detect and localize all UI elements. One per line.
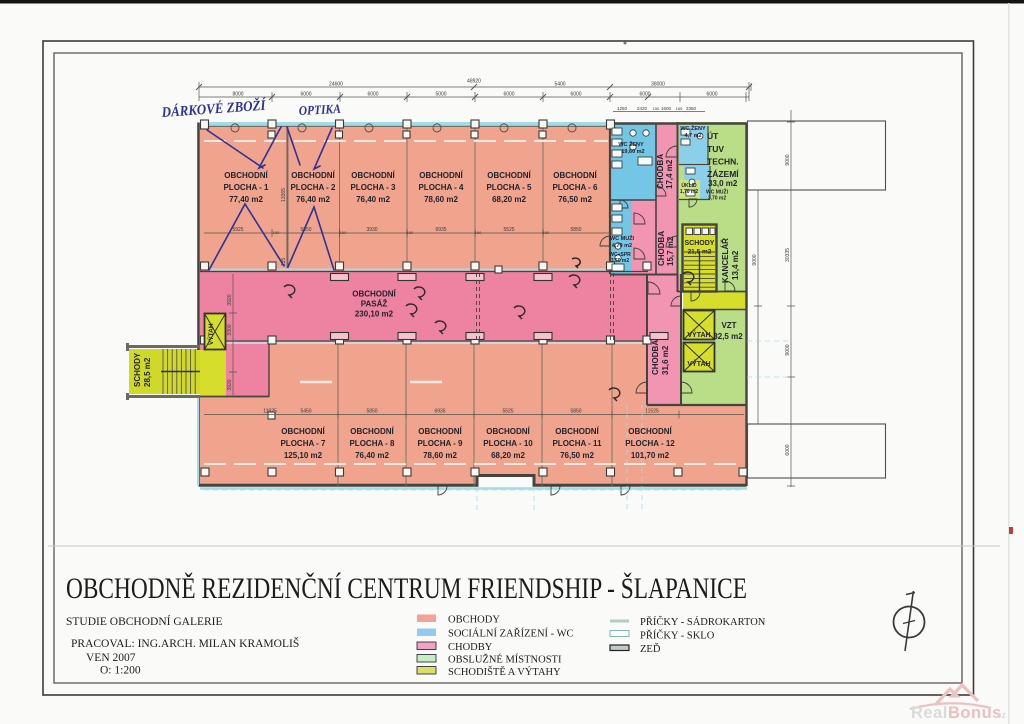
svg-text:150: 150	[653, 106, 660, 111]
svg-text:OBCHODNÍ: OBCHODNÍ	[352, 290, 396, 299]
svg-text:6935: 6935	[435, 227, 446, 233]
svg-text:SCHODY: SCHODY	[685, 240, 715, 247]
svg-text:PLOCHA - 3: PLOCHA - 3	[350, 183, 396, 192]
svg-text:OBCHODNÍ: OBCHODNÍ	[419, 171, 463, 180]
svg-text:OBCHODNÍ: OBCHODNÍ	[291, 171, 335, 180]
svg-text:OBCHODNÍ: OBCHODNÍ	[628, 427, 672, 436]
svg-text:PASÁŽ: PASÁŽ	[361, 300, 388, 309]
svg-text:O: 1:200: O: 1:200	[100, 665, 141, 677]
svg-text:PLOCHA - 8: PLOCHA - 8	[349, 439, 395, 448]
svg-text:6000: 6000	[503, 92, 514, 98]
svg-text:38000: 38000	[651, 82, 665, 88]
svg-text:PLOCHA - 9: PLOCHA - 9	[417, 439, 463, 448]
svg-text:6000: 6000	[570, 92, 581, 98]
svg-text:6000: 6000	[785, 444, 791, 455]
svg-text:76,50 m2: 76,50 m2	[560, 451, 594, 460]
svg-text:.cz: .cz	[994, 710, 1007, 720]
svg-text:3,70 m2: 3,70 m2	[708, 196, 727, 202]
svg-text:2350: 2350	[686, 106, 697, 111]
svg-text:6000: 6000	[300, 92, 311, 98]
svg-text:OBCHODNÍ: OBCHODNÍ	[224, 171, 268, 180]
svg-text:Real: Real	[911, 704, 948, 722]
svg-text:VEN 2007: VEN 2007	[86, 652, 136, 664]
svg-text:1,70 m2: 1,70 m2	[680, 189, 699, 195]
svg-text:OBCHODNÍ: OBCHODNÍ	[553, 171, 597, 180]
svg-text:77,40 m2: 77,40 m2	[229, 195, 263, 204]
svg-text:OBCHODNÍ: OBCHODNÍ	[486, 427, 530, 436]
svg-text:5000: 5000	[435, 92, 446, 98]
svg-text:VÝTAH: VÝTAH	[687, 330, 710, 339]
svg-text:13,4 m2: 13,4 m2	[731, 250, 740, 280]
svg-text:28,5 m2: 28,5 m2	[143, 357, 152, 387]
svg-text:ZEĎ: ZEĎ	[640, 643, 661, 655]
svg-text:9000: 9000	[785, 154, 791, 165]
svg-text:150: 150	[340, 230, 347, 235]
svg-text:3920: 3920	[227, 294, 233, 305]
svg-text:PLOCHA - 2: PLOCHA - 2	[290, 183, 336, 192]
svg-text:101,70 m2: 101,70 m2	[631, 451, 670, 460]
svg-text:5850: 5850	[570, 227, 581, 233]
svg-text:19,60 m2: 19,60 m2	[621, 149, 644, 155]
svg-text:15,7 m2: 15,7 m2	[666, 236, 675, 266]
svg-text:3930: 3930	[366, 227, 377, 233]
svg-text:OBCHODNÍ: OBCHODNÍ	[487, 171, 531, 180]
svg-text:6935: 6935	[434, 409, 445, 415]
svg-text:SOCIÁLNÍ ZAŘÍZENÍ - WC: SOCIÁLNÍ ZAŘÍZENÍ - WC	[448, 628, 574, 640]
svg-text:OPTIKA: OPTIKA	[298, 101, 341, 118]
svg-text:33,0 m2: 33,0 m2	[708, 179, 738, 188]
svg-text:TECHN.: TECHN.	[707, 157, 739, 167]
svg-text:125,10 m2: 125,10 m2	[284, 451, 323, 460]
svg-text:OBCHODNÍ: OBCHODNÍ	[281, 427, 325, 436]
svg-text:5850: 5850	[366, 409, 377, 415]
svg-text:PLOCHA - 12: PLOCHA - 12	[625, 439, 675, 448]
svg-text:21,5 m2: 21,5 m2	[688, 249, 712, 256]
svg-text:WC MUŽI: WC MUŽI	[610, 234, 635, 242]
svg-text:PLOCHA - 6: PLOCHA - 6	[552, 183, 598, 192]
svg-text:4,7 m2: 4,7 m2	[684, 133, 701, 139]
svg-text:9000: 9000	[785, 344, 791, 355]
svg-text:PLOCHA - 4: PLOCHA - 4	[418, 183, 464, 192]
svg-text:PLOCHA - 11: PLOCHA - 11	[552, 439, 602, 448]
svg-text:24600: 24600	[329, 82, 343, 88]
svg-text:OBCHODNÍ: OBCHODNÍ	[418, 427, 462, 436]
svg-text:32,5 m2: 32,5 m2	[713, 332, 743, 341]
svg-text:5400: 5400	[554, 82, 565, 88]
svg-text:VZT: VZT	[721, 321, 736, 330]
svg-text:13365: 13365	[281, 188, 287, 202]
svg-text:1250: 1250	[617, 106, 628, 111]
svg-text:150: 150	[543, 230, 550, 235]
svg-text:TUV: TUV	[707, 144, 724, 154]
svg-text:76,40 m2: 76,40 m2	[355, 451, 389, 460]
svg-text:68,20 m2: 68,20 m2	[491, 451, 525, 460]
svg-text:OBCHODNÍ: OBCHODNÍ	[351, 171, 395, 180]
svg-text:68,20 m2: 68,20 m2	[492, 195, 526, 204]
svg-text:3300: 3300	[227, 324, 233, 335]
svg-text:150: 150	[273, 230, 280, 235]
svg-text:9000: 9000	[752, 254, 758, 265]
svg-text:76,40 m2: 76,40 m2	[296, 195, 330, 204]
svg-text:CHODBY: CHODBY	[448, 642, 493, 653]
svg-text:5850: 5850	[300, 227, 311, 233]
svg-text:4,70 m2: 4,70 m2	[612, 243, 632, 249]
svg-text:5925: 5925	[232, 227, 243, 233]
svg-text:CHODBA: CHODBA	[657, 231, 666, 266]
svg-text:6000: 6000	[639, 92, 650, 98]
svg-text:CHODBA: CHODBA	[651, 340, 660, 375]
svg-text:PLOCHA - 7: PLOCHA - 7	[280, 439, 326, 448]
svg-text:ÚKLID: ÚKLID	[681, 182, 697, 189]
svg-text:CHODBA: CHODBA	[656, 154, 665, 189]
svg-text:PŘÍČKY - SÁDROKARTON: PŘÍČKY - SÁDROKARTON	[640, 616, 766, 628]
svg-text:78,60 m2: 78,60 m2	[423, 451, 457, 460]
svg-text:OBSLUŽNÉ MÍSTNOSTI: OBSLUŽNÉ MÍSTNOSTI	[448, 654, 562, 666]
svg-text:SCHODY: SCHODY	[133, 352, 142, 387]
svg-text:OBCHODNĚ REZIDENČNÍ CENTRUM FR: OBCHODNĚ REZIDENČNÍ CENTRUM FRIENDSHIP -…	[66, 572, 747, 605]
svg-text:150: 150	[407, 230, 414, 235]
svg-text:OBCHODNÍ: OBCHODNÍ	[350, 427, 394, 436]
svg-text:ZÁZEMÍ: ZÁZEMÍ	[707, 169, 739, 179]
svg-text:PRACOVAL: ING.ARCH. MILAN KRAM: PRACOVAL: ING.ARCH. MILAN KRAMOLIŠ	[71, 636, 299, 650]
svg-text:WC MUŽI: WC MUŽI	[706, 188, 729, 196]
svg-text:OBCHODNÍ: OBCHODNÍ	[555, 427, 599, 436]
svg-text:OBCHODY: OBCHODY	[448, 615, 500, 626]
svg-text:150: 150	[475, 230, 482, 235]
svg-text:6000: 6000	[367, 92, 378, 98]
svg-text:SCHODIŠTĚ A VÝTAHY: SCHODIŠTĚ A VÝTAHY	[448, 666, 561, 678]
svg-text:11925: 11925	[263, 409, 277, 415]
svg-text:VÝTAH: VÝTAH	[687, 359, 710, 368]
svg-text:PLOCHA - 5: PLOCHA - 5	[486, 183, 532, 192]
svg-text:5850: 5850	[570, 409, 581, 415]
svg-text:KANCELÁŘ: KANCELÁŘ	[721, 238, 730, 283]
svg-text:PLOCHA - 1: PLOCHA - 1	[223, 183, 269, 192]
svg-text:STUDIE OBCHODNÍ GALERIE: STUDIE OBCHODNÍ GALERIE	[66, 614, 223, 628]
svg-text:48920: 48920	[467, 79, 481, 85]
svg-text:165: 165	[676, 106, 683, 111]
svg-text:WC ŽENY: WC ŽENY	[618, 140, 644, 148]
svg-text:5525: 5525	[502, 409, 513, 415]
svg-text:230,10 m2: 230,10 m2	[355, 310, 394, 319]
svg-text:2420: 2420	[637, 106, 648, 111]
svg-text:6000: 6000	[706, 92, 717, 98]
svg-text:8000: 8000	[232, 92, 243, 98]
svg-text:5525: 5525	[503, 227, 514, 233]
svg-text:WC ŽENY: WC ŽENY	[680, 124, 706, 132]
svg-text:17,4 m2: 17,4 m2	[665, 159, 674, 189]
svg-text:5450: 5450	[300, 409, 311, 415]
svg-text:11525: 11525	[645, 409, 659, 415]
svg-text:ÚT: ÚT	[707, 130, 719, 141]
svg-text:76,50 m2: 76,50 m2	[558, 195, 592, 204]
svg-text:PŘÍČKY - SKLO: PŘÍČKY - SKLO	[640, 630, 715, 642]
svg-text:3,50 m2: 3,50 m2	[611, 258, 630, 264]
svg-text:30335: 30335	[785, 248, 791, 262]
svg-text:PLOCHA - 10: PLOCHA - 10	[483, 439, 533, 448]
svg-text:76,40 m2: 76,40 m2	[356, 195, 390, 204]
svg-text:3920: 3920	[227, 379, 233, 390]
svg-text:1600: 1600	[661, 106, 672, 111]
svg-text:VÝTAH: VÝTAH	[206, 323, 215, 345]
svg-text:31,6 m2: 31,6 m2	[661, 345, 670, 375]
svg-text:78,60 m2: 78,60 m2	[424, 195, 458, 204]
